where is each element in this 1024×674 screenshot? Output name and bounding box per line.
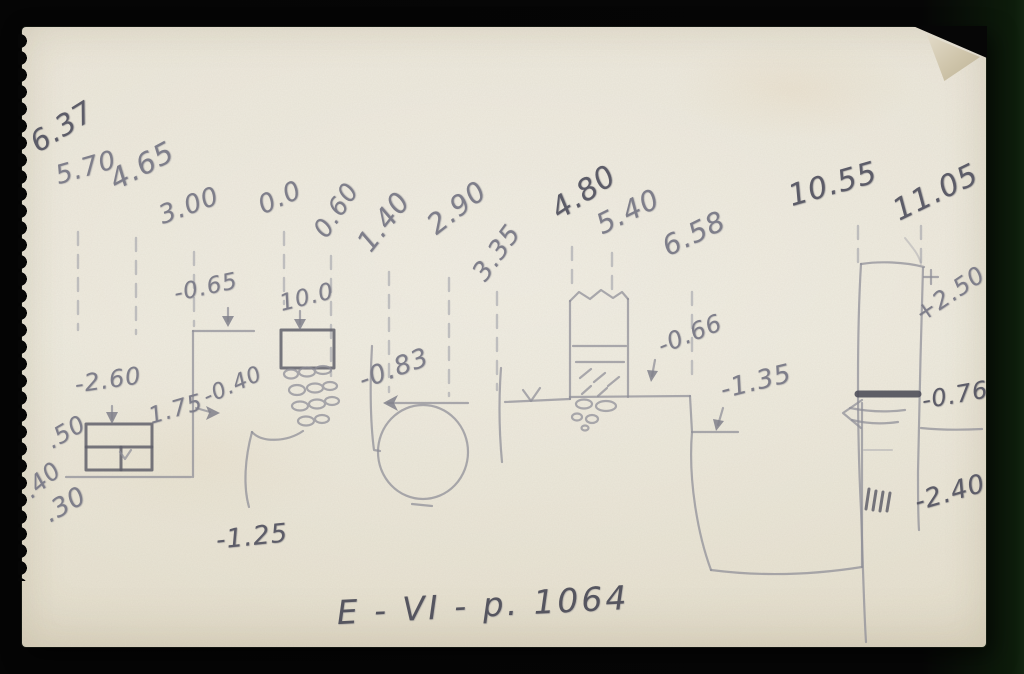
measurement-label: -1.25 — [215, 520, 290, 553]
lower-pit-outline — [690, 396, 862, 574]
stone-column — [570, 290, 690, 431]
buried-box-and-stones — [222, 308, 339, 426]
photo-background: 6.37 5.70 4.65 3.00 0.0 0.60 1.40 2.90 3… — [0, 0, 1024, 674]
pencil-profile-sketch — [0, 0, 1024, 674]
